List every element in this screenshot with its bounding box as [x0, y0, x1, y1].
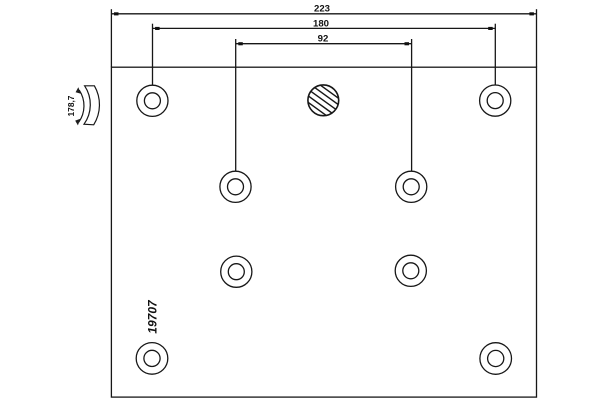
svg-text:19707: 19707: [145, 299, 159, 334]
svg-text:180: 180: [313, 18, 329, 29]
svg-text:92: 92: [318, 34, 329, 45]
svg-text:178,7: 178,7: [66, 95, 76, 116]
svg-text:223: 223: [314, 4, 330, 15]
